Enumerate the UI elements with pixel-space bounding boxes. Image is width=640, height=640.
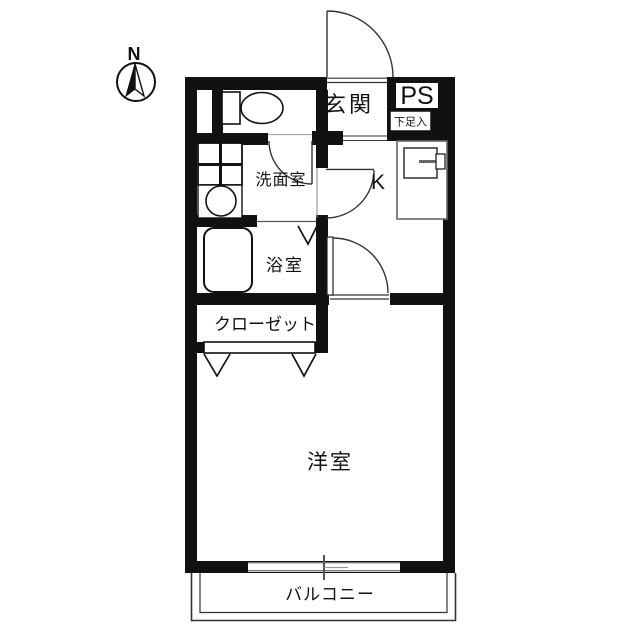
bathtub-icon <box>204 228 252 292</box>
floor-plan-drawing: N 玄関 PS 下足入 K 洗面室 浴室 クローゼット 洋室 バルコニー <box>0 0 640 640</box>
wall-left-outer <box>185 77 197 573</box>
washing-machine-icon <box>206 186 236 216</box>
washroom-label: 洗面室 <box>255 171 306 189</box>
wall-top <box>185 77 327 90</box>
toilet-tank-icon <box>222 92 240 124</box>
wall-mid-vertical-lower <box>316 215 328 293</box>
north-label: N <box>128 44 141 64</box>
toilet-bowl-icon <box>241 93 283 124</box>
entrance-doorway <box>327 77 387 90</box>
pipe-space-label: PS <box>400 82 433 110</box>
kitchen-faucet-icon <box>436 154 445 169</box>
entrance-label: 玄関 <box>324 92 374 117</box>
kitchen-label: K <box>371 171 385 194</box>
wall-middle-band-left <box>185 293 329 305</box>
closet-label: クローゼット <box>214 315 316 334</box>
balcony-label: バルコニー <box>285 585 375 604</box>
shoe-box-label: 下足入 <box>394 117 427 129</box>
main-room-door-leaf <box>327 237 333 295</box>
western-room-label: 洋室 <box>307 451 353 474</box>
closet-door-panel <box>204 342 315 353</box>
bathroom-label: 浴室 <box>266 256 304 275</box>
floor-plan-canvas: N 玄関 PS 下足入 K 洗面室 浴室 クローゼット 洋室 バルコニー <box>0 0 640 640</box>
wall-middle-band-right <box>390 293 455 305</box>
